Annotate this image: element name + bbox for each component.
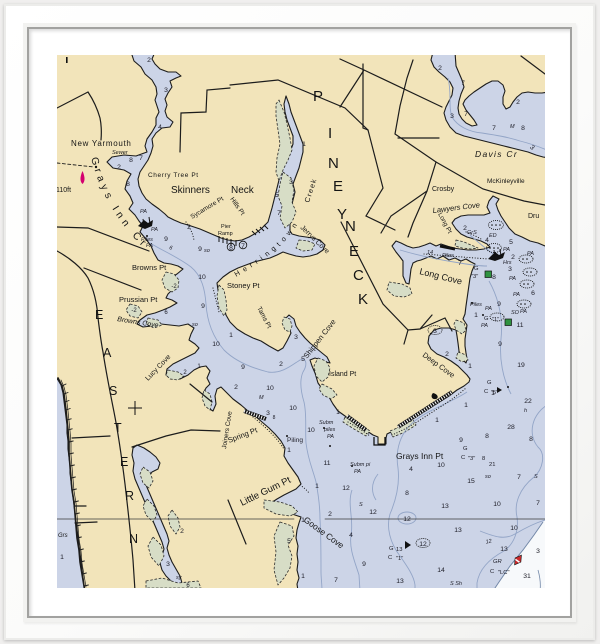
svg-text:2: 2 [180, 528, 184, 535]
svg-text:PA: PA [485, 306, 492, 312]
svg-text:8: 8 [129, 157, 133, 164]
svg-text:S Sh: S Sh [450, 581, 462, 587]
svg-text:Piles: Piles [442, 253, 454, 259]
svg-text:Sewer: Sewer [112, 150, 129, 156]
svg-text:PA: PA [503, 247, 510, 253]
svg-text:2: 2 [438, 65, 442, 72]
svg-text:3: 3 [294, 334, 298, 341]
svg-text:GrS: GrS [467, 230, 477, 236]
svg-text:9: 9 [459, 437, 463, 444]
svg-text:10: 10 [266, 385, 274, 392]
svg-text:piles: piles [323, 427, 336, 433]
svg-text:2: 2 [187, 224, 191, 231]
svg-text:ED: ED [489, 233, 497, 239]
svg-text:7: 7 [536, 500, 540, 507]
svg-text:7: 7 [492, 125, 496, 132]
svg-text:8: 8 [485, 433, 489, 440]
svg-text:E: E [349, 243, 359, 260]
svg-text:PA: PA [509, 276, 516, 282]
svg-text:G: G [474, 266, 479, 272]
svg-text:1: 1 [60, 554, 64, 561]
svg-text:Subm pi: Subm pi [350, 462, 371, 468]
svg-text:"LC": "LC" [498, 570, 510, 576]
svg-text:4: 4 [158, 124, 162, 131]
svg-text:12: 12 [419, 541, 427, 548]
svg-text:7: 7 [461, 80, 465, 87]
svg-text:1: 1 [435, 417, 439, 424]
svg-text:R: R [125, 489, 134, 503]
svg-text:1: 1 [301, 517, 305, 524]
svg-text:3: 3 [508, 266, 512, 273]
svg-text:"5": "5" [491, 390, 498, 396]
svg-text:K: K [358, 291, 368, 308]
svg-text:Subm: Subm [319, 420, 334, 426]
svg-text:7: 7 [277, 210, 281, 217]
svg-text:12: 12 [403, 516, 411, 523]
svg-text:3: 3 [536, 548, 540, 555]
svg-text:9: 9 [497, 301, 501, 308]
svg-text:-2: -2 [131, 308, 137, 314]
svg-text:2: 2 [516, 99, 520, 106]
svg-text:11: 11 [516, 322, 523, 329]
svg-text:Browns Pt: Browns Pt [132, 263, 167, 272]
svg-text:13: 13 [454, 527, 462, 534]
svg-text:Island Pt: Island Pt [329, 371, 356, 378]
svg-text:8: 8 [229, 245, 233, 252]
svg-text:Piles: Piles [470, 302, 482, 308]
svg-text:110ft: 110ft [57, 187, 71, 194]
svg-text:1: 1 [229, 332, 233, 339]
svg-text:C: C [353, 267, 364, 284]
svg-text:Dru: Dru [528, 213, 539, 220]
svg-text:2: 2 [328, 511, 332, 518]
svg-text:10: 10 [437, 462, 445, 469]
svg-text:so: so [192, 322, 198, 328]
svg-text:1: 1 [336, 409, 340, 416]
svg-text:15: 15 [467, 478, 475, 485]
svg-text:1: 1 [287, 447, 291, 454]
svg-text:Ramp: Ramp [218, 231, 233, 237]
svg-text:3: 3 [166, 561, 170, 568]
svg-text:PA: PA [513, 292, 520, 298]
svg-text:Skinners: Skinners [171, 185, 210, 196]
svg-text:so: so [485, 474, 491, 480]
svg-text:S: S [359, 502, 363, 508]
svg-text:2: 2 [117, 164, 121, 171]
svg-text:1: 1 [468, 363, 472, 370]
svg-text:10: 10 [493, 501, 501, 508]
svg-text:9: 9 [362, 561, 366, 568]
svg-text:5: 5 [275, 192, 279, 199]
svg-text:4: 4 [349, 532, 353, 539]
svg-text:10: 10 [289, 405, 297, 412]
svg-text:10: 10 [307, 427, 315, 434]
svg-text:3: 3 [164, 87, 168, 94]
svg-text:13: 13 [396, 547, 402, 553]
svg-text:C: C [388, 555, 392, 561]
svg-text:Pier: Pier [221, 224, 231, 230]
svg-text:3: 3 [433, 328, 437, 335]
svg-text:13: 13 [500, 546, 508, 553]
svg-text:1: 1 [464, 402, 468, 409]
svg-text:"3": "3" [471, 274, 478, 280]
svg-text:S: S [109, 384, 117, 398]
svg-text:13: 13 [396, 578, 404, 585]
svg-text:3: 3 [450, 113, 454, 120]
svg-text:8: 8 [529, 436, 533, 443]
svg-text:C: C [484, 389, 488, 395]
svg-text:8: 8 [405, 490, 409, 497]
svg-text:N: N [345, 218, 356, 235]
svg-text:S: S [534, 474, 538, 480]
svg-text:2: 2 [234, 384, 238, 391]
svg-text:G: G [463, 446, 468, 452]
svg-text:3: 3 [266, 410, 270, 417]
svg-text:9: 9 [241, 364, 245, 371]
svg-text:8: 8 [273, 415, 276, 421]
svg-text:8: 8 [492, 274, 496, 281]
svg-text:PA: PA [527, 251, 534, 257]
svg-text:10: 10 [198, 274, 206, 281]
svg-text:10: 10 [212, 341, 220, 348]
svg-text:M: M [510, 124, 515, 130]
svg-text:4: 4 [409, 466, 413, 473]
svg-text:"1": "1" [492, 317, 499, 323]
svg-text:5: 5 [509, 239, 513, 246]
svg-text:2: 2 [279, 361, 283, 368]
svg-text:7: 7 [139, 155, 143, 162]
svg-text:Davis Cr: Davis Cr [475, 149, 518, 159]
svg-text:3: 3 [289, 179, 293, 186]
svg-text:2: 2 [147, 57, 151, 64]
svg-text:E: E [333, 178, 343, 195]
svg-text:G: G [487, 380, 492, 386]
svg-text:7: 7 [464, 111, 468, 118]
svg-text:N: N [328, 155, 339, 172]
svg-text:Piling: Piling [287, 437, 303, 444]
svg-text:PA: PA [140, 209, 147, 215]
svg-text:Stoney Pt: Stoney Pt [227, 281, 260, 290]
svg-text:9: 9 [164, 236, 168, 243]
svg-text:M: M [259, 395, 264, 401]
svg-text:PA: PA [520, 309, 527, 315]
svg-text:McKinleyville: McKinleyville [487, 178, 525, 185]
svg-text:9: 9 [201, 303, 205, 310]
svg-text:6: 6 [531, 290, 535, 297]
svg-text:1: 1 [315, 483, 319, 490]
svg-text:8: 8 [126, 181, 130, 188]
svg-text:1: 1 [302, 141, 306, 148]
svg-text:SO: SO [511, 310, 520, 316]
svg-text:19: 19 [517, 362, 525, 369]
svg-text:14: 14 [437, 567, 445, 574]
svg-text:G: G [484, 316, 489, 322]
svg-text:12: 12 [342, 485, 350, 492]
svg-text:12: 12 [369, 509, 377, 516]
svg-text:Grs: Grs [58, 533, 68, 539]
svg-text:2: 2 [511, 254, 515, 261]
svg-text:7: 7 [458, 260, 462, 267]
svg-text:13: 13 [441, 503, 449, 510]
svg-text:1: 1 [301, 573, 305, 580]
svg-text:7: 7 [334, 577, 338, 584]
svg-text:N: N [129, 532, 138, 546]
svg-text:8: 8 [482, 456, 485, 462]
svg-text:T: T [114, 421, 122, 435]
svg-text:7: 7 [517, 474, 521, 481]
svg-text:PA: PA [327, 434, 334, 440]
svg-text:PA: PA [151, 227, 158, 233]
svg-text:PA: PA [354, 469, 361, 475]
svg-text:9: 9 [198, 246, 202, 253]
svg-text:Grays Inn Pt: Grays Inn Pt [396, 451, 444, 461]
svg-text:14: 14 [427, 250, 433, 256]
svg-text:G: G [389, 546, 394, 552]
svg-text:"1": "1" [396, 556, 403, 562]
svg-text:Cherry Tree Pt: Cherry Tree Pt [148, 172, 199, 179]
svg-text:PA: PA [481, 323, 488, 329]
svg-text:I: I [328, 125, 332, 142]
svg-text:8: 8 [521, 125, 525, 132]
svg-text:E: E [120, 455, 128, 469]
svg-text:21: 21 [489, 462, 495, 468]
svg-text:E: E [95, 308, 103, 322]
svg-text:Hrs: Hrs [503, 260, 512, 266]
svg-text:Neck: Neck [231, 185, 255, 196]
svg-text:5: 5 [301, 356, 305, 363]
svg-text:P: P [313, 88, 323, 105]
svg-text:22: 22 [524, 398, 532, 405]
svg-text:Prussian Pt: Prussian Pt [119, 295, 158, 304]
svg-text:9: 9 [498, 341, 502, 348]
svg-text:A: A [103, 346, 112, 360]
svg-text:11: 11 [323, 460, 330, 467]
svg-text:GR: GR [493, 559, 503, 565]
svg-text:2: 2 [445, 351, 449, 358]
svg-text:1: 1 [474, 312, 478, 319]
svg-text:28: 28 [507, 424, 515, 431]
svg-text:7: 7 [241, 243, 245, 250]
svg-text:"3": "3" [468, 456, 475, 462]
svg-text:10: 10 [510, 525, 518, 532]
svg-text:PA: PA [146, 243, 153, 249]
svg-text:Crosby: Crosby [432, 186, 455, 193]
svg-text:C: C [490, 569, 494, 575]
svg-text:h: h [524, 408, 527, 414]
svg-text:31: 31 [523, 573, 531, 580]
svg-text:12: 12 [485, 538, 492, 545]
svg-text:New Yarmouth: New Yarmouth [71, 139, 132, 148]
svg-text:C: C [461, 455, 465, 461]
svg-text:5: 5 [287, 538, 291, 545]
svg-text:so: so [204, 248, 210, 254]
svg-text:-2: -2 [171, 284, 177, 290]
